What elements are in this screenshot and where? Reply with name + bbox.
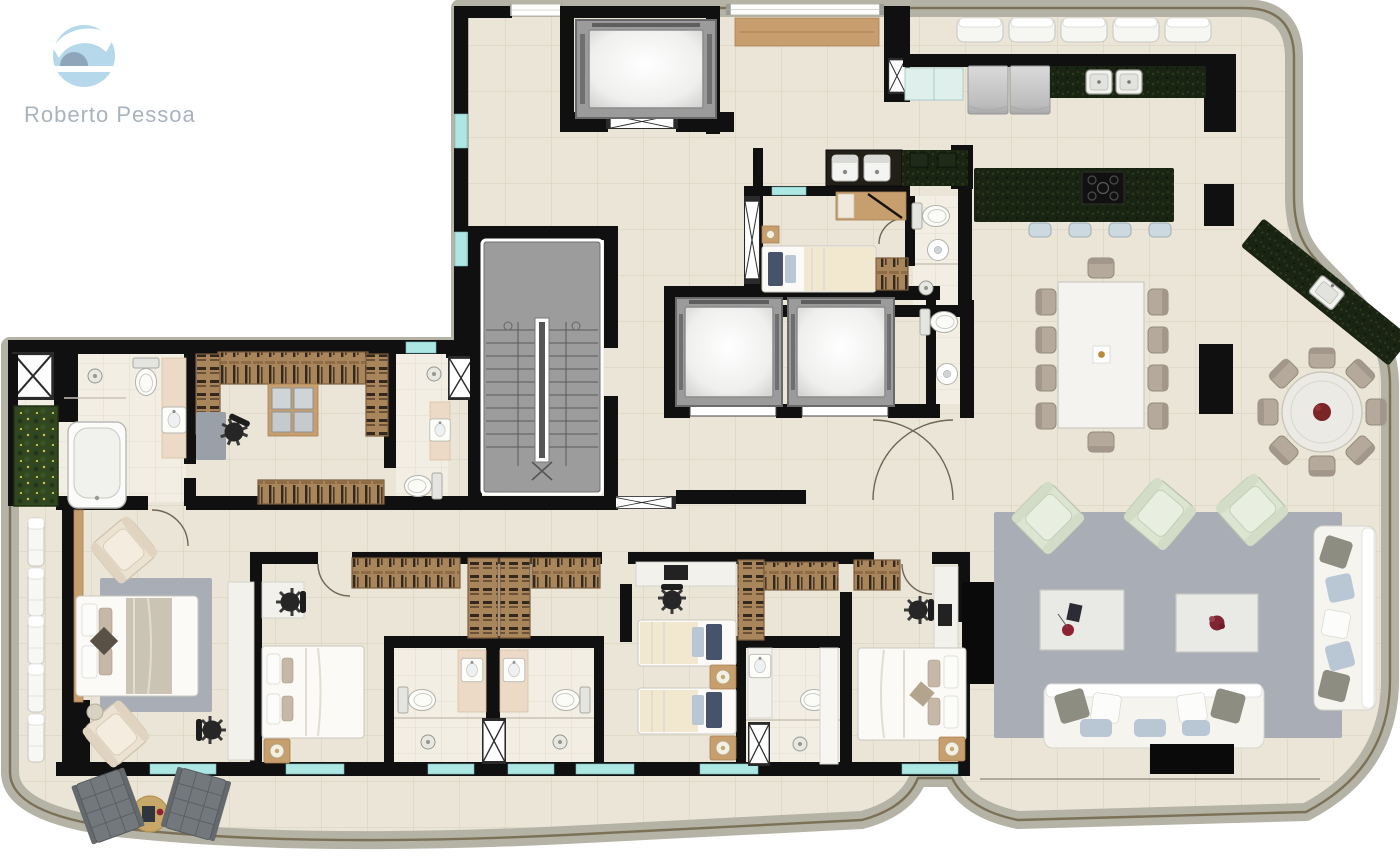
- lounger-1: [28, 518, 44, 566]
- lounger-3: [28, 616, 44, 664]
- elevator-sill-1: [690, 406, 776, 416]
- lounger-5: [28, 714, 44, 762]
- staff-toilet: [912, 203, 950, 229]
- t-wardrobe-row: [532, 558, 600, 588]
- entry-door-sill: [744, 199, 759, 282]
- brand-logo: Roberto Pessoa: [24, 25, 196, 127]
- closet-window: [406, 342, 436, 353]
- coffee-table-1: [1040, 590, 1124, 650]
- window-left-1: [455, 114, 467, 148]
- twin-nightstand-2: [710, 736, 736, 760]
- staff-wardrobe: [876, 258, 908, 290]
- balcony-bench-5: [1165, 18, 1211, 42]
- master-side-table: [87, 704, 103, 720]
- island-stool-4: [1149, 223, 1171, 237]
- bath-b-sink: [503, 658, 525, 681]
- slider-5: [576, 764, 634, 774]
- service-window-1: [772, 187, 806, 195]
- bath-a-shower: [421, 735, 435, 749]
- master-shower: [88, 369, 102, 383]
- washer-1: [832, 155, 858, 181]
- slider-4: [508, 764, 554, 774]
- slider-7: [902, 764, 958, 774]
- elevator-sill-2: [802, 406, 888, 416]
- bed4-wardrobe: [854, 560, 900, 590]
- bath3-shower: [793, 737, 807, 751]
- bed2-wardrobe: [352, 558, 460, 588]
- stairwell: [482, 240, 602, 494]
- bed3-laptop: [664, 565, 688, 580]
- bath2-sink: [430, 419, 450, 441]
- powder-sink: [937, 364, 958, 385]
- cooktop: [1082, 172, 1124, 204]
- powder-toilet: [920, 309, 958, 335]
- terrace-side-table: [142, 806, 155, 822]
- balcony-bench-2: [1009, 18, 1055, 42]
- wardrobe-top: [218, 352, 368, 384]
- shaft-3: [449, 357, 473, 398]
- bath3-sink: [749, 654, 771, 677]
- elevator-2: [788, 298, 894, 406]
- t-wardrobe-left: [468, 558, 498, 638]
- bath-a-sink: [461, 658, 483, 681]
- stair-door-sill: [610, 496, 674, 508]
- bath-a-toilet: [398, 687, 436, 713]
- lounger-2: [28, 568, 44, 616]
- bed4-nightstand: [939, 737, 965, 761]
- balcony-bench-1: [957, 18, 1003, 42]
- shaft-2: [13, 353, 52, 398]
- shaft-4: [483, 719, 506, 762]
- shaft-5: [749, 723, 770, 764]
- t-wardrobe-right: [500, 558, 530, 638]
- elevator-1: [676, 298, 782, 406]
- bed4-bed: [858, 648, 966, 740]
- staff-sink: [928, 240, 949, 261]
- north-balcony: [957, 18, 1211, 42]
- bed4-laptop: [938, 604, 952, 626]
- master-desk-chair: [196, 716, 226, 744]
- bed3-wardrobe-row: [764, 562, 838, 590]
- round-table-centerpiece: [1313, 403, 1331, 421]
- bath-b-toilet: [553, 687, 591, 713]
- bed3-wardrobe-col: [738, 560, 764, 640]
- island-stool-2: [1069, 223, 1091, 237]
- coffee-table-2: [1176, 594, 1258, 652]
- main-sofa: [1044, 684, 1264, 748]
- side-sofa: [1314, 526, 1376, 710]
- window-top-1: [510, 4, 562, 16]
- brand-name: Roberto Pessoa: [24, 102, 196, 127]
- living-room: [994, 472, 1376, 774]
- bed4-chair: [904, 596, 934, 624]
- floorplan-canvas: Roberto Pessoa: [0, 0, 1400, 860]
- bed2-bed: [262, 646, 364, 738]
- bed3-chair: [658, 584, 686, 614]
- twin-bed-2: [638, 688, 736, 734]
- bathtub: [68, 422, 126, 508]
- wardrobe-bottom: [258, 480, 384, 504]
- bath-b-shower: [553, 735, 567, 749]
- twin-bed-1: [638, 620, 736, 666]
- bath2-toilet: [405, 473, 443, 499]
- bed2-nightstand: [264, 739, 290, 763]
- staff-shower: [919, 281, 933, 295]
- lounger-4: [28, 664, 44, 712]
- column: [1199, 344, 1233, 414]
- tv-rack: [1150, 744, 1234, 774]
- master-desk: [228, 582, 254, 760]
- slider-2: [286, 764, 344, 774]
- bath3-door-panel: [820, 648, 838, 764]
- twin-nightstand-1: [710, 665, 736, 689]
- balcony-bench-3: [1061, 18, 1107, 42]
- closet-island-dresser: [268, 384, 318, 436]
- service-elevator: [576, 20, 716, 118]
- west-balcony: [28, 518, 44, 762]
- balcony-bench-4: [1113, 18, 1159, 42]
- master-sink: [162, 407, 186, 433]
- slider-3: [428, 764, 474, 774]
- kitchen-island: [974, 168, 1174, 222]
- entry-hall: [735, 18, 879, 46]
- island-stool-1: [1029, 223, 1051, 237]
- bed2-chair: [276, 588, 306, 616]
- master-bed: [76, 596, 198, 696]
- folding-table: [836, 192, 906, 220]
- shoe-wardrobe: [366, 354, 388, 436]
- window-left-2: [455, 232, 467, 266]
- shaft-1: [889, 59, 906, 93]
- master-toilet: [133, 358, 159, 396]
- floorplan-page: Roberto Pessoa: [0, 0, 1400, 860]
- tv-panel-wall: [962, 582, 998, 684]
- washer-2: [864, 155, 890, 181]
- vertical-garden: [14, 406, 58, 506]
- bath2-shower: [427, 367, 441, 381]
- island-stool-3: [1109, 223, 1131, 237]
- window-top-2: [726, 4, 884, 15]
- round-dining-set: [1258, 348, 1386, 476]
